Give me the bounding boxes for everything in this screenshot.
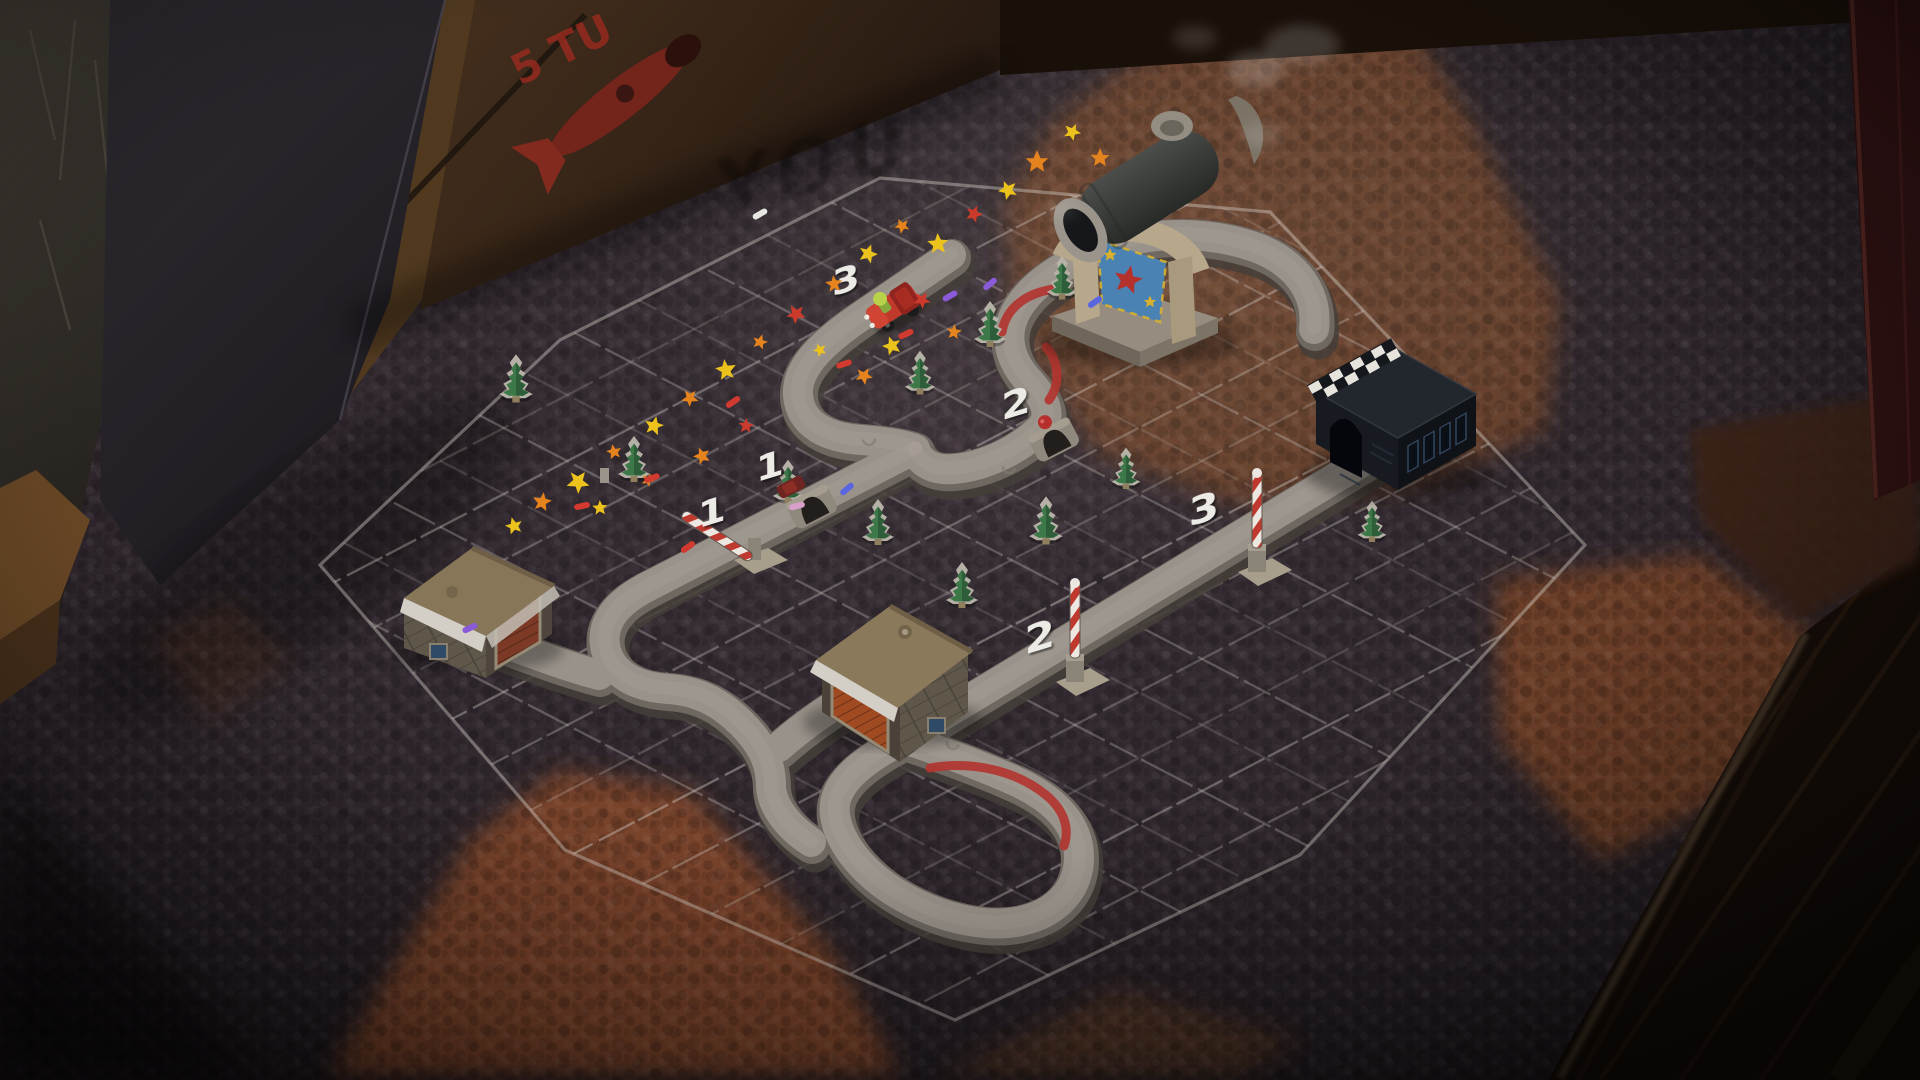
game-viewport: 5 TU YOU bbox=[0, 0, 1920, 1080]
vignette bbox=[0, 0, 1920, 1080]
game-scene: 5 TU YOU bbox=[0, 0, 1920, 1080]
